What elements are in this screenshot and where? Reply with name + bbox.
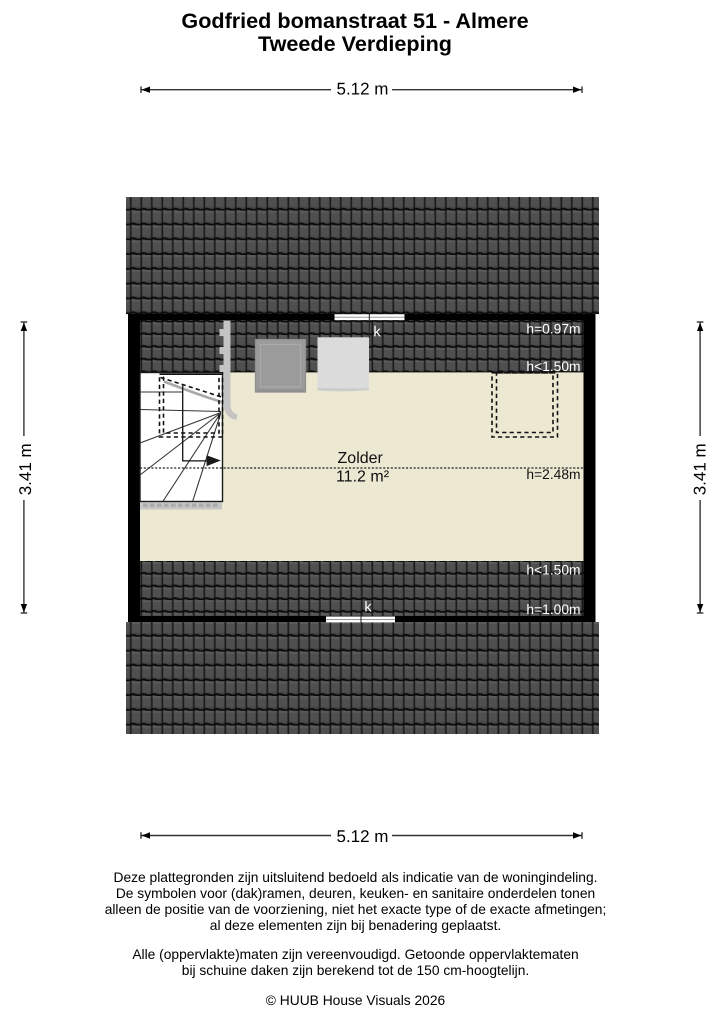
svg-text:h<1.50m: h<1.50m — [526, 563, 580, 578]
svg-text:h=2.48m: h=2.48m — [526, 467, 580, 482]
svg-text:k: k — [364, 599, 372, 615]
svg-text:11.2 m²: 11.2 m² — [336, 469, 390, 486]
svg-text:k: k — [373, 324, 381, 340]
svg-text:3.41 m: 3.41 m — [691, 443, 710, 495]
svg-text:Zolder: Zolder — [338, 450, 384, 467]
svg-text:h<1.50m: h<1.50m — [526, 359, 580, 374]
svg-text:h=1.00m: h=1.00m — [526, 602, 580, 617]
svg-text:5.12 m: 5.12 m — [337, 80, 389, 99]
svg-text:5.12 m: 5.12 m — [337, 827, 389, 846]
svg-text:3.41 m: 3.41 m — [16, 443, 35, 495]
svg-text:h=0.97m: h=0.97m — [526, 322, 580, 337]
